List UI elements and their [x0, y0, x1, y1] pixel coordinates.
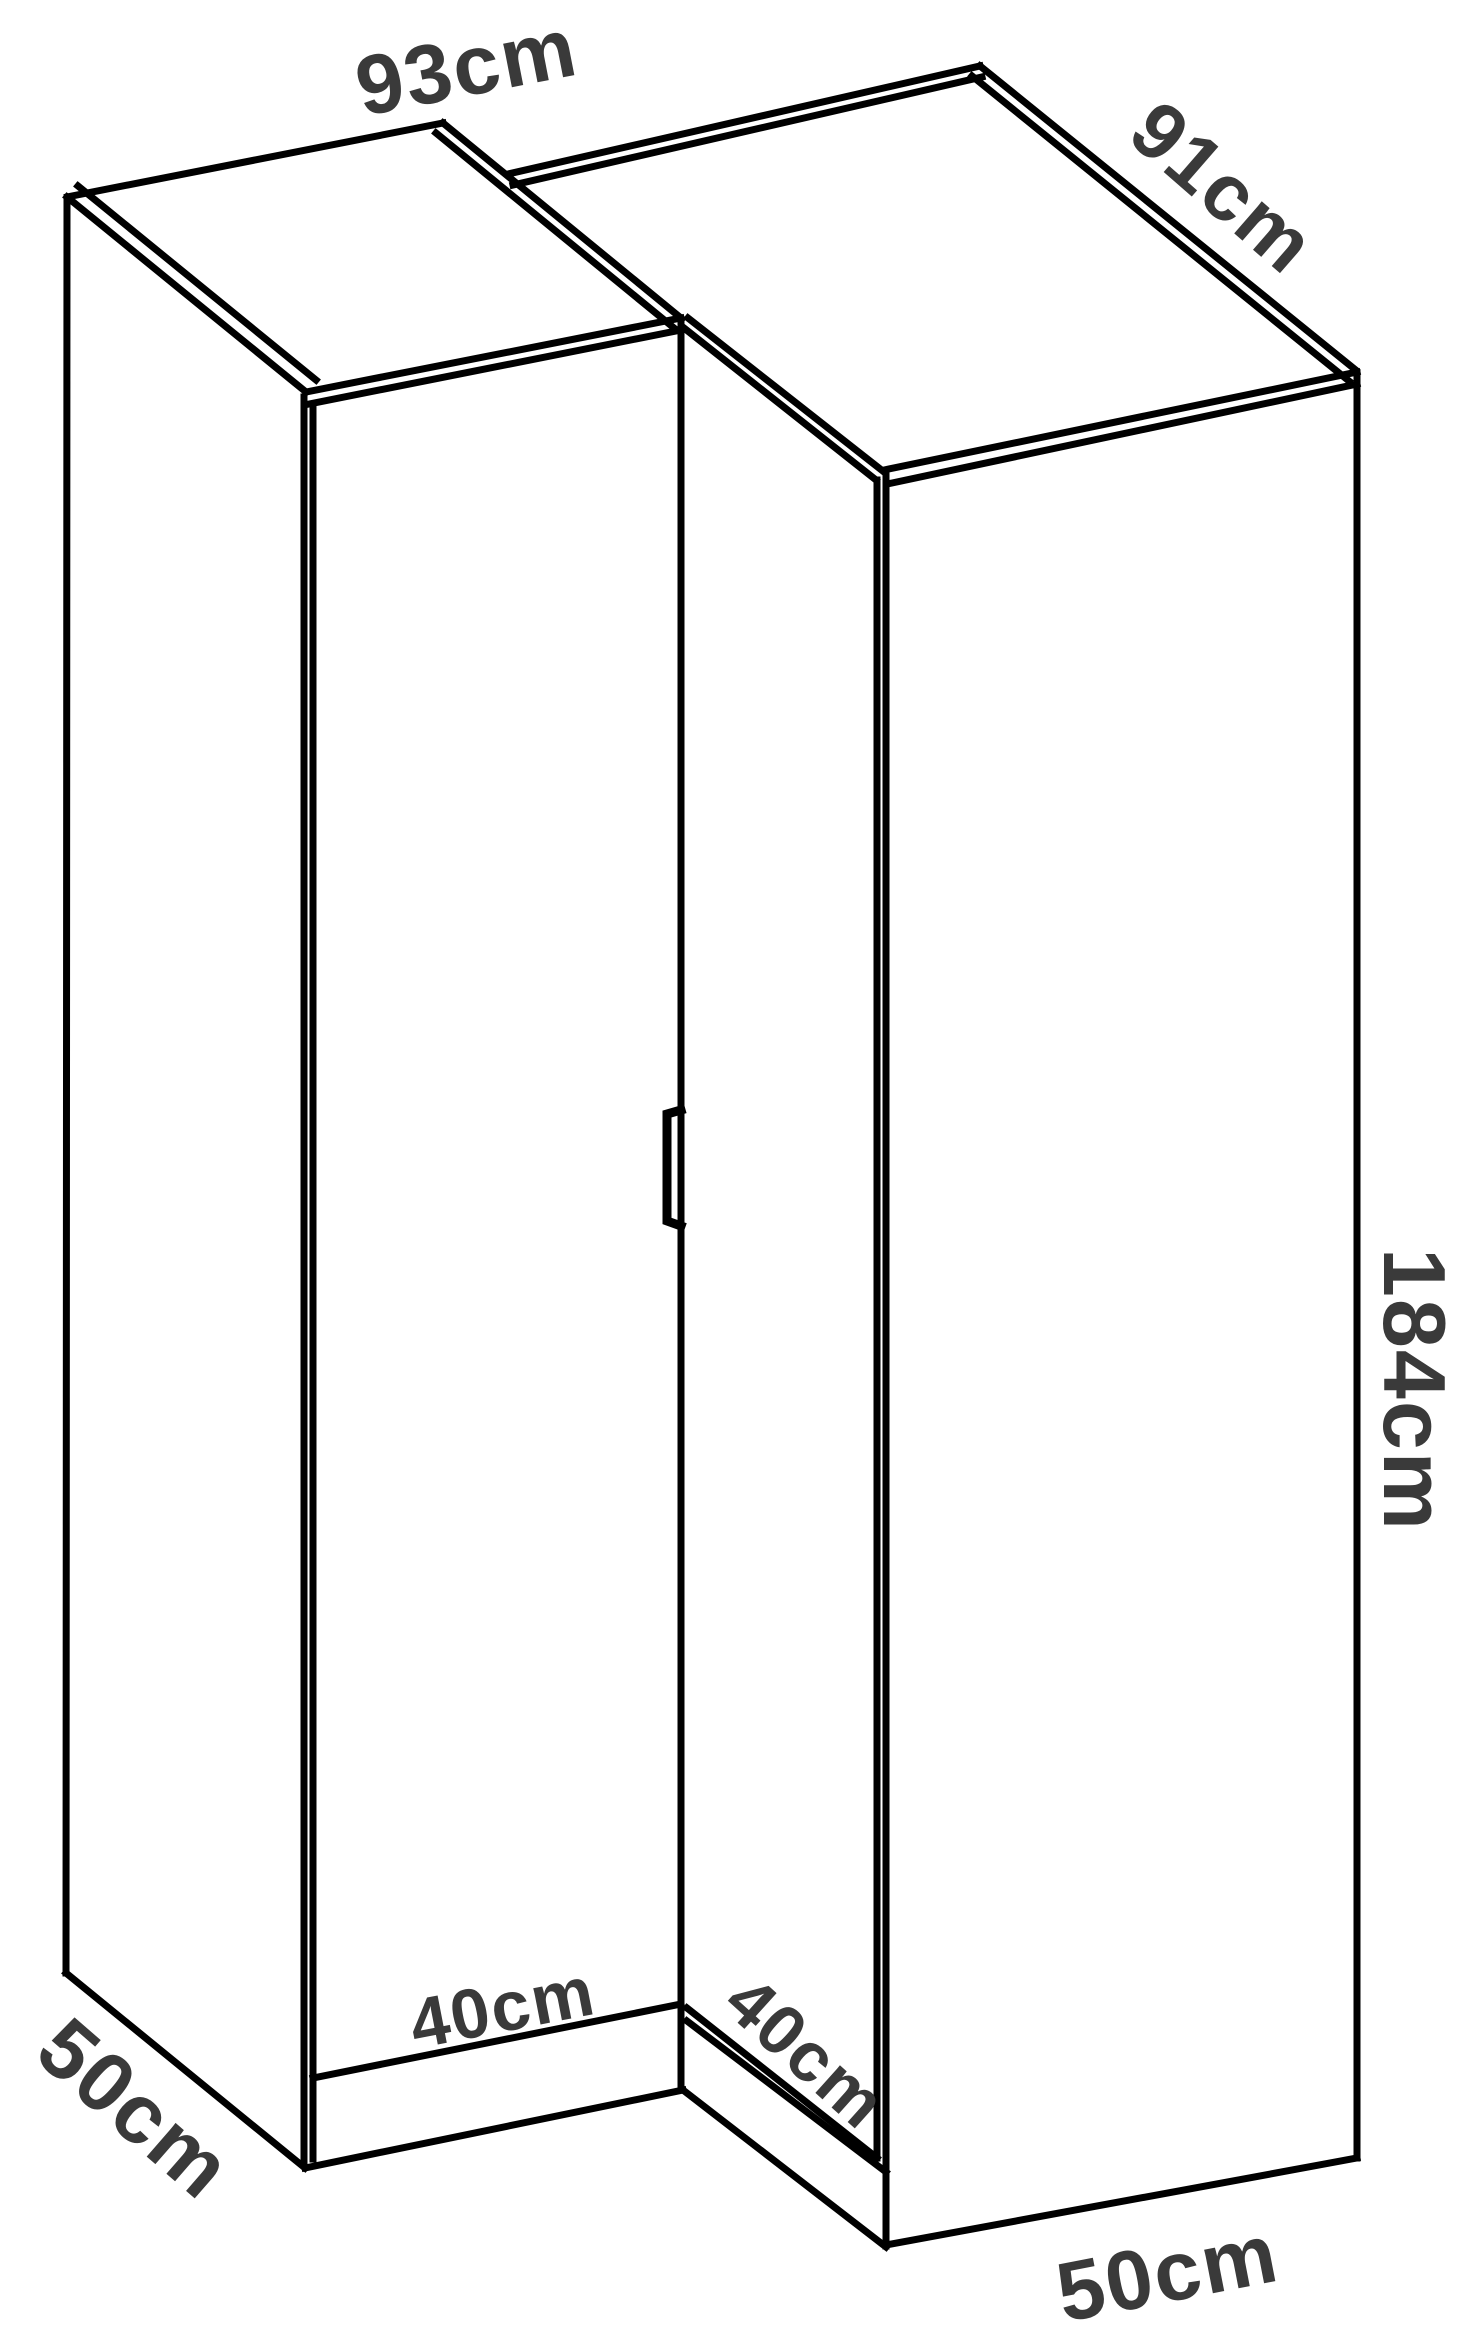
left-door-top-edge: [306, 318, 681, 392]
right-unit-top-right-edge: [980, 66, 1357, 2158]
dim-label-height: 184cm: [1365, 1248, 1461, 1532]
left-unit-bottom-front-edge: [305, 2090, 683, 2168]
right-unit-front-top-edge-inner: [892, 384, 1357, 483]
right-door-top-edge-inner: [684, 328, 876, 480]
right-unit-top-back-edge-inner: [513, 77, 982, 185]
dim-label-top-left-width: 93cm: [348, 0, 585, 134]
right-door-top-edge: [688, 318, 884, 472]
right-wardrobe-unit: [508, 66, 1357, 2247]
left-unit-top-front-edge: [67, 197, 306, 392]
left-unit-outline: [66, 123, 443, 1973]
dim-label-bottom-right-width: 50cm: [1049, 2205, 1286, 2338]
right-unit-bottom-front-edge: [886, 2158, 1357, 2245]
dimension-labels: 93cm 91cm 184cm 40cm 40cm 50cm 50cm: [20, 0, 1461, 2338]
left-wardrobe-unit: [66, 123, 683, 2168]
left-door-top-edge-inner: [309, 330, 681, 404]
left-unit-top-right-edge: [443, 123, 681, 2089]
dim-label-left-door-width: 40cm: [403, 1951, 601, 2063]
diagram-canvas: 93cm 91cm 184cm 40cm 40cm 50cm 50cm: [0, 0, 1461, 2338]
wardrobe-dimension-diagram: 93cm 91cm 184cm 40cm 40cm 50cm 50cm: [0, 0, 1461, 2338]
left-unit-top-front-edge-inner: [78, 186, 316, 380]
right-unit-front-top-edge: [884, 372, 1357, 470]
